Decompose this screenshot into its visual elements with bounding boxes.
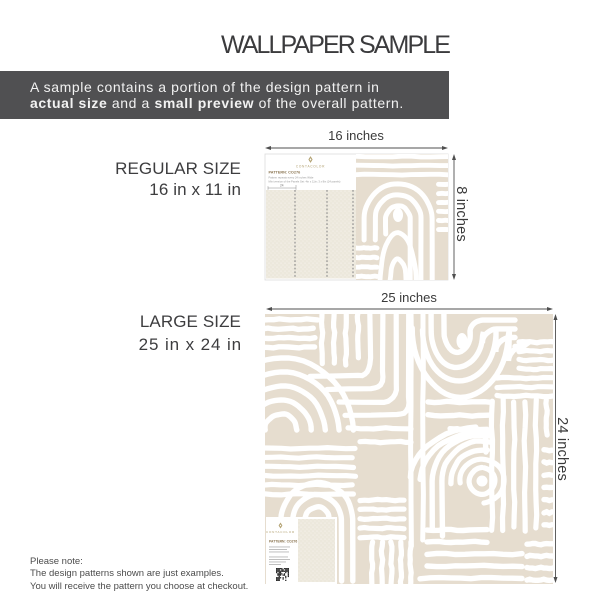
svg-text:24 inches: 24 inches	[554, 417, 570, 481]
svg-text:8 inches: 8 inches	[453, 186, 469, 242]
svg-text:PATTERN: CO276: PATTERN: CO276	[269, 540, 297, 544]
svg-text:PATTERN: CO276: PATTERN: CO276	[269, 170, 301, 174]
svg-text:CONTACOLOR: CONTACOLOR	[296, 164, 325, 168]
svg-text:Pattern repeats every 24 inche: Pattern repeats every 24 inches Wide	[269, 176, 314, 180]
svg-text:CONTACOLOR: CONTACOLOR	[266, 530, 295, 534]
svg-text:24: 24	[280, 184, 284, 188]
